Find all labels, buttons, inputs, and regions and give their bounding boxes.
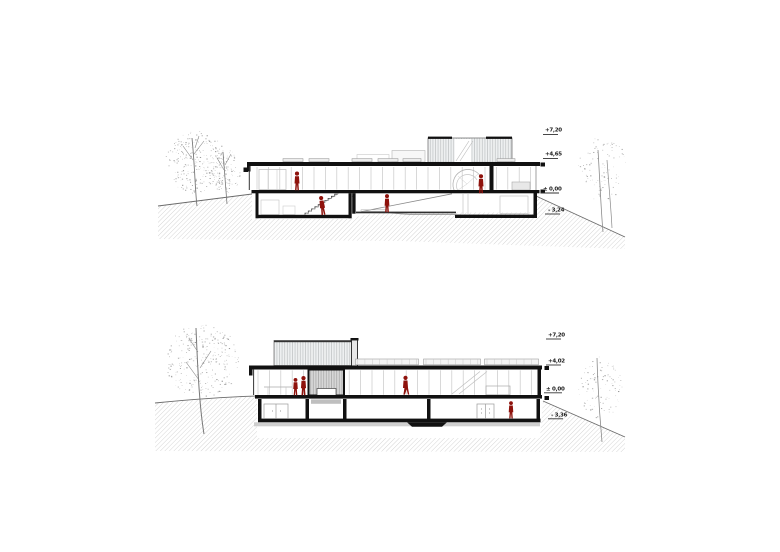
tree-foliage (168, 325, 239, 397)
level-label-lower-2: +4,02 (548, 358, 565, 364)
footing-strip (254, 422, 540, 426)
tree-upper-left (166, 131, 241, 206)
tree-foliage (579, 357, 623, 418)
tree-upper-right (578, 139, 626, 232)
tree-foliage (210, 150, 241, 192)
building-section-upper (244, 137, 546, 219)
level-label-lower-1: +7,20 (548, 332, 565, 338)
drawing-canvas: +7,20 +4,65 ± 0,00 - 3,24 +7,20 +4,02 ± … (0, 0, 780, 552)
tree-foliage (578, 139, 626, 200)
roof-glazing-strips (356, 359, 539, 365)
level-label-upper-2: +4,65 (545, 151, 562, 157)
level-label-upper-3: ± 0,00 (543, 186, 562, 192)
level-tick-marks (541, 135, 563, 419)
level-label-lower-3: ± 0,00 (546, 386, 565, 392)
sump (407, 422, 447, 427)
sections-drawing (0, 0, 780, 552)
building-section-lower (249, 338, 549, 427)
level-label-upper-1: +7,20 (545, 127, 562, 133)
clerestory-box (274, 341, 352, 366)
level-label-upper-4: - 3,24 (548, 207, 564, 213)
level-label-lower-4: - 3,36 (551, 412, 567, 418)
